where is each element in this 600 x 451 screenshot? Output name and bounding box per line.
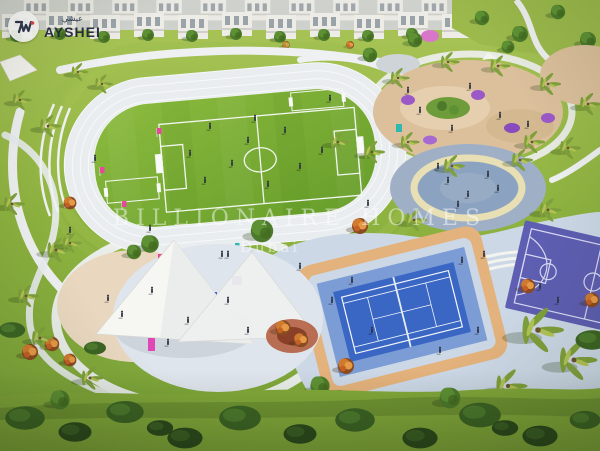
ayshei-logo: عيشي AYSHEI	[8, 11, 101, 42]
park-aerial-render-screenshot: BILLIONAIRE HOMES Dubai عيشي AYSHEI	[0, 0, 600, 451]
ayshei-brand-text: AYSHEI	[44, 25, 101, 39]
ayshei-arabic-text: عيشي	[44, 15, 101, 23]
ayshei-monogram-icon	[8, 11, 39, 42]
goal	[357, 137, 365, 155]
park-scene	[0, 0, 600, 451]
goal	[155, 154, 163, 172]
planting-island	[426, 97, 470, 119]
